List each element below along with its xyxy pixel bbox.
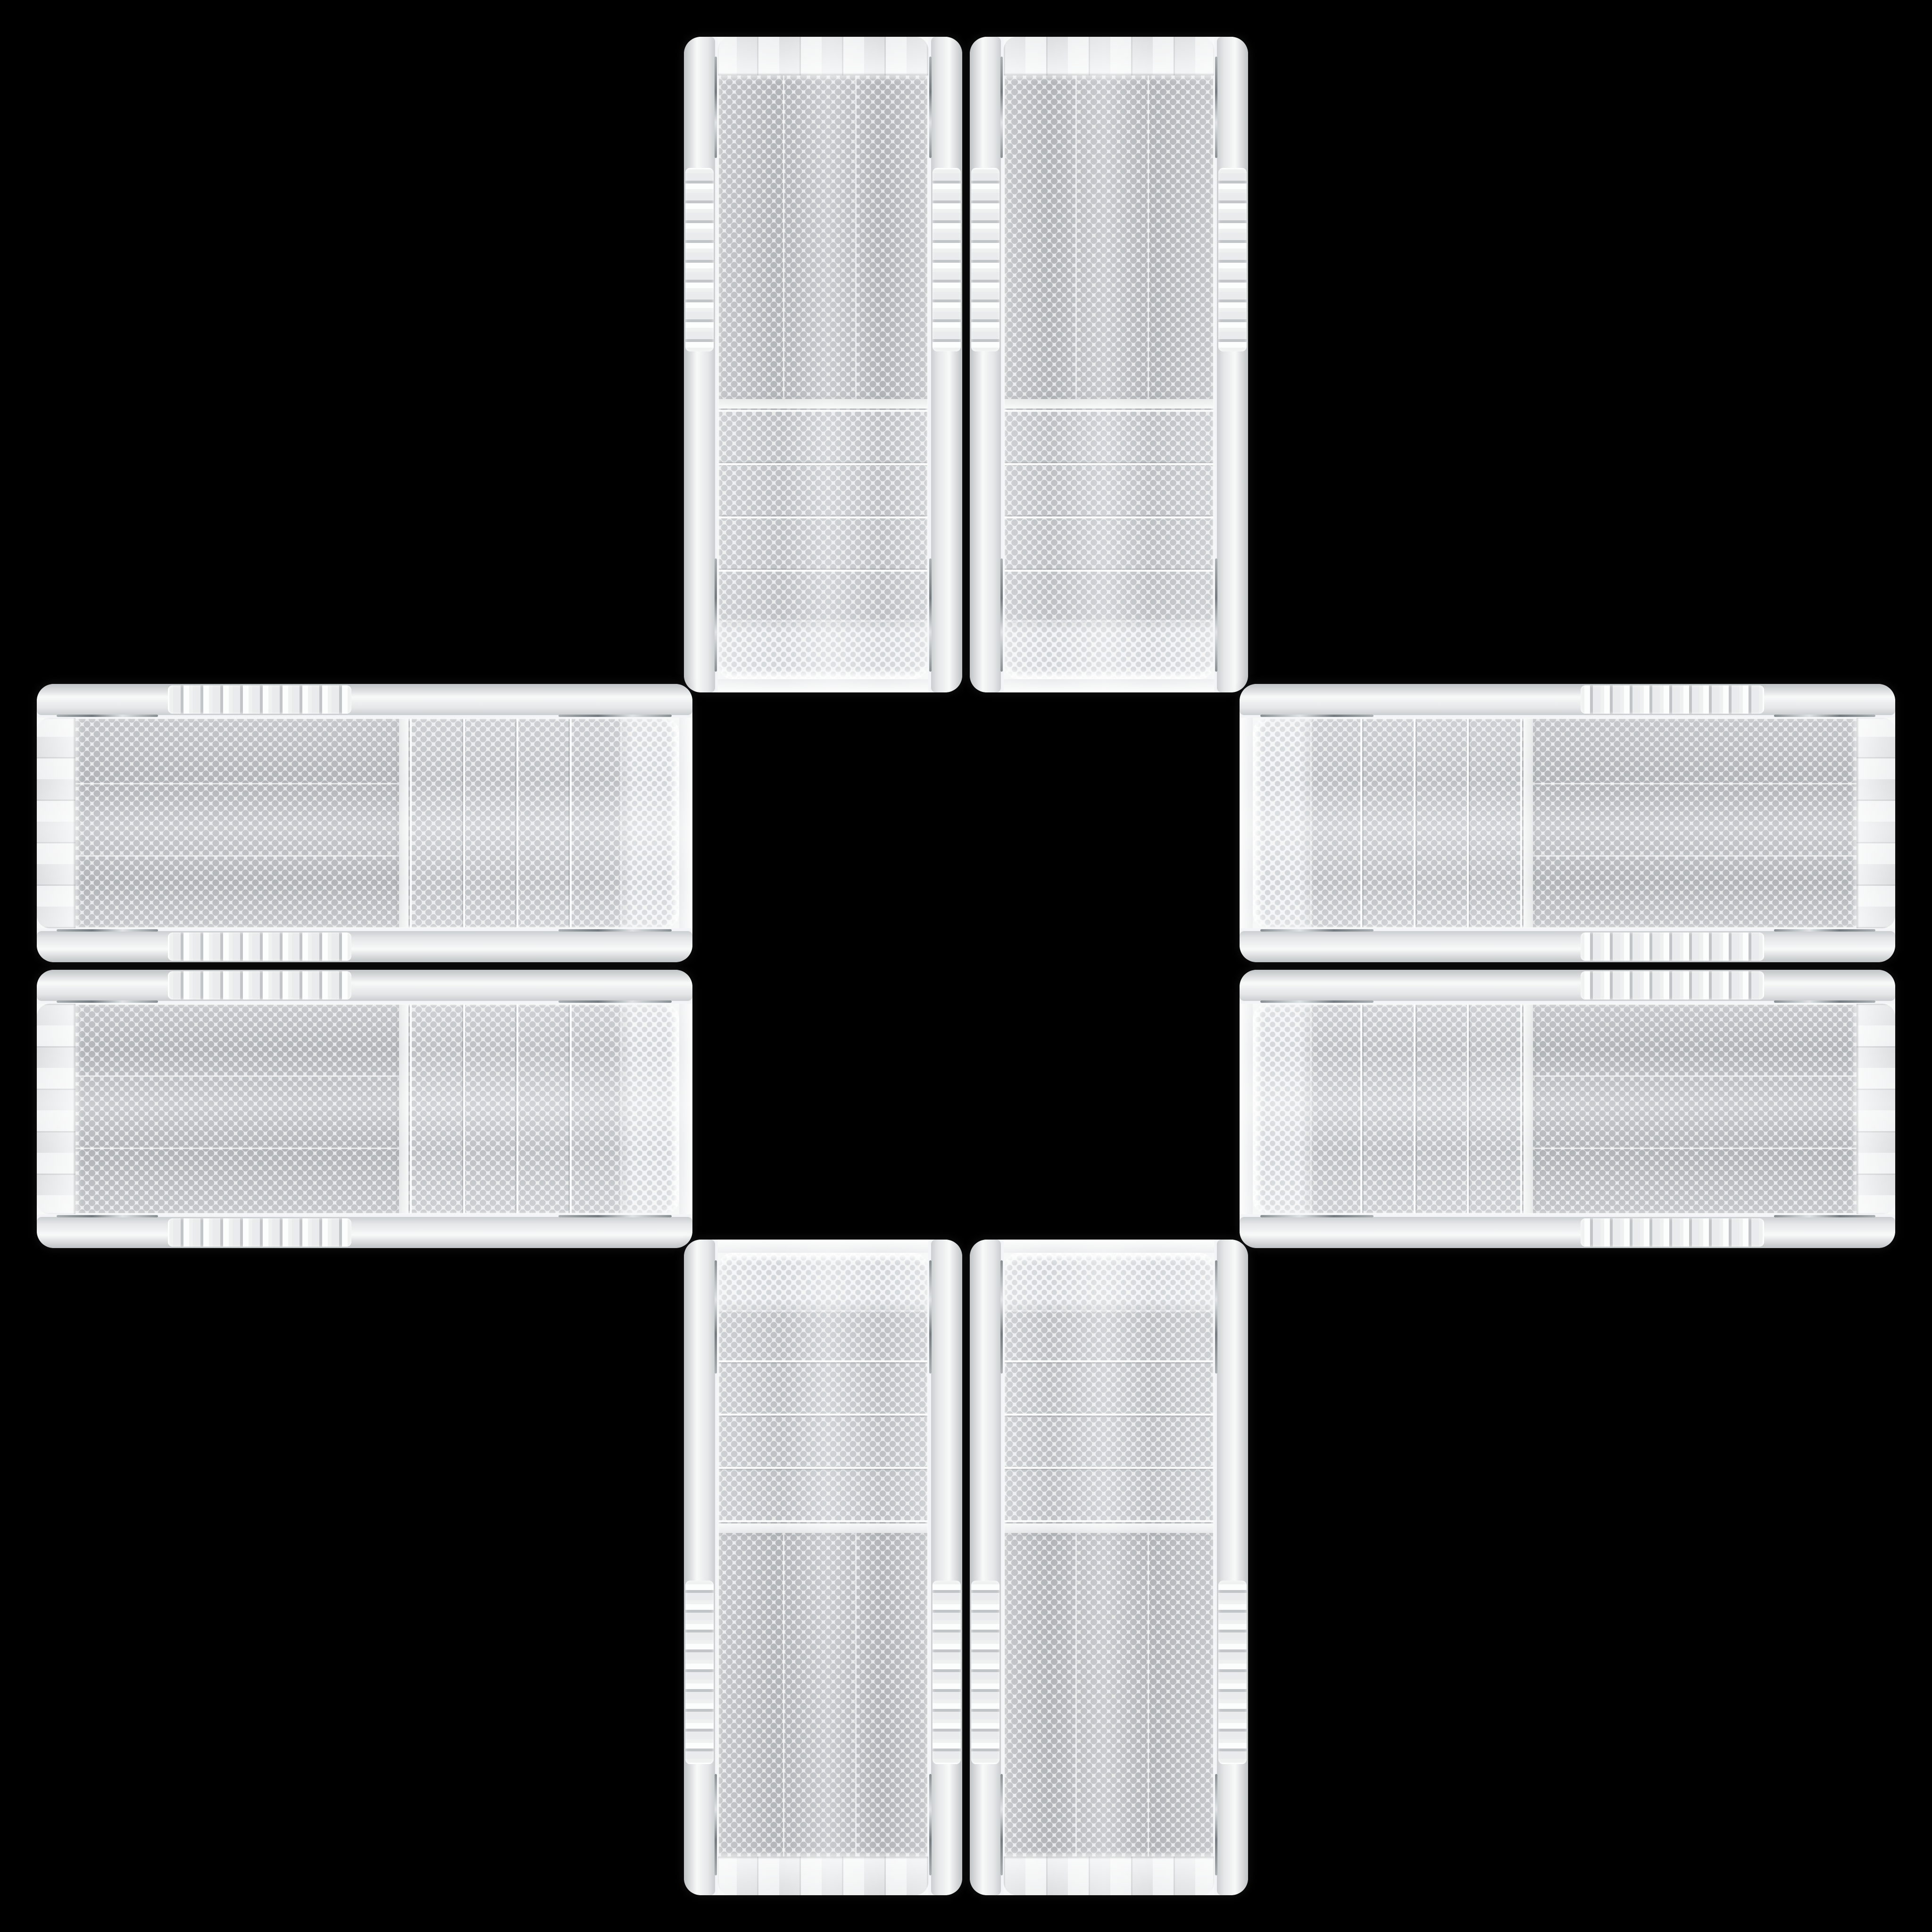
front-mesh-panel: COOLER MASTER bbox=[1533, 719, 1857, 927]
chrome-accent-right-bottom bbox=[57, 715, 158, 717]
top-mesh-bulge bbox=[622, 719, 679, 927]
front-mesh-panel: COOLER MASTER bbox=[719, 75, 927, 399]
case-body: COOLER MASTER bbox=[1240, 970, 1895, 1248]
top-mesh-bulge bbox=[719, 622, 927, 679]
grip-ribs-left bbox=[1581, 971, 1764, 999]
pc-case-left-bottom: COOLER MASTER bbox=[37, 970, 692, 1248]
grip-ribs-right bbox=[685, 168, 714, 351]
top-trim-band bbox=[679, 718, 692, 928]
case-body: COOLER MASTER bbox=[684, 1240, 962, 1895]
case-side-rail-right bbox=[1217, 37, 1248, 692]
drive-bay-covers bbox=[1005, 1310, 1213, 1524]
chrome-accent-left-bottom bbox=[1000, 1774, 1003, 1875]
drive-bay-covers bbox=[719, 1310, 927, 1524]
case-side-rail-right bbox=[684, 1240, 715, 1895]
top-mesh-bulge bbox=[1253, 1005, 1310, 1213]
chrome-accent-left-top bbox=[558, 929, 672, 932]
top-mesh-bulge bbox=[1253, 719, 1310, 927]
grip-ribs-right bbox=[1218, 1581, 1247, 1764]
drive-bay-covers bbox=[719, 408, 927, 622]
grip-ribs-left bbox=[168, 933, 351, 961]
top-trim-band bbox=[718, 1240, 928, 1253]
top-trim-band bbox=[1240, 1004, 1253, 1214]
case-body: COOLER MASTER bbox=[684, 37, 962, 692]
grip-ribs-left bbox=[971, 1581, 999, 1764]
drive-bay-covers bbox=[1310, 719, 1524, 927]
case-side-rail-left bbox=[970, 37, 1001, 692]
chrome-accent-right-bottom bbox=[57, 1215, 158, 1217]
top-mesh-bulge bbox=[719, 1253, 927, 1310]
case-front-panel: COOLER MASTER bbox=[1004, 37, 1214, 692]
top-trim-band bbox=[679, 1004, 692, 1214]
top-mesh-bulge bbox=[622, 1005, 679, 1213]
case-side-rail-left bbox=[931, 37, 962, 692]
chrome-accent-left-top bbox=[558, 1000, 672, 1003]
grip-ribs-right bbox=[1581, 1218, 1764, 1247]
chrome-accent-right-top bbox=[715, 1260, 717, 1374]
chrome-accent-right-bottom bbox=[1215, 1774, 1217, 1875]
bottom-cap bbox=[718, 37, 928, 75]
case-body: COOLER MASTER bbox=[970, 37, 1248, 692]
top-trim-band bbox=[718, 679, 928, 692]
case-front-panel: COOLER MASTER bbox=[718, 1240, 928, 1895]
top-mesh-bulge bbox=[1005, 1253, 1213, 1310]
pc-case-top-left: COOLER MASTER bbox=[684, 37, 962, 692]
grip-ribs-right bbox=[168, 685, 351, 714]
bottom-cap bbox=[718, 1857, 928, 1895]
case-front-panel: COOLER MASTER bbox=[1240, 1004, 1895, 1214]
panel-separator bbox=[1524, 1005, 1533, 1213]
case-body: COOLER MASTER bbox=[1240, 684, 1895, 962]
chrome-accent-right-bottom bbox=[715, 57, 717, 158]
panel-separator bbox=[719, 399, 927, 408]
pc-case-left-top: COOLER MASTER bbox=[37, 684, 692, 962]
case-side-rail-left bbox=[1240, 931, 1895, 962]
chrome-accent-left-bottom bbox=[929, 57, 932, 158]
case-side-rail-left bbox=[931, 1240, 962, 1895]
pc-case-right-top: COOLER MASTER bbox=[1240, 684, 1895, 962]
case-side-rail-left bbox=[1240, 970, 1895, 1001]
drive-bay-covers bbox=[408, 719, 622, 927]
case-body: COOLER MASTER bbox=[37, 970, 692, 1248]
front-mesh-panel: COOLER MASTER bbox=[719, 1533, 927, 1857]
bottom-cap bbox=[1857, 1004, 1895, 1214]
chrome-accent-left-top bbox=[1000, 1260, 1003, 1374]
front-mesh-panel: COOLER MASTER bbox=[75, 719, 399, 927]
grip-ribs-left bbox=[933, 168, 961, 351]
case-body: COOLER MASTER bbox=[970, 1240, 1248, 1895]
bottom-cap bbox=[37, 1004, 75, 1214]
case-side-rail-right bbox=[37, 684, 692, 715]
chrome-accent-left-bottom bbox=[1774, 1000, 1875, 1003]
case-front-panel: COOLER MASTER bbox=[37, 718, 692, 928]
case-side-rail-right bbox=[1240, 1217, 1895, 1248]
top-trim-band bbox=[1240, 718, 1253, 928]
chrome-accent-right-bottom bbox=[1215, 57, 1217, 158]
case-front-panel: COOLER MASTER bbox=[1240, 718, 1895, 928]
case-front-panel: COOLER MASTER bbox=[718, 37, 928, 692]
drive-bay-covers bbox=[1005, 408, 1213, 622]
product-collage: COOLER MASTER bbox=[0, 0, 1932, 1932]
chrome-accent-left-bottom bbox=[57, 929, 158, 932]
bottom-cap bbox=[37, 718, 75, 928]
chrome-accent-right-top bbox=[1260, 1215, 1374, 1217]
chrome-accent-left-bottom bbox=[57, 1000, 158, 1003]
chrome-accent-left-bottom bbox=[1000, 57, 1003, 158]
grip-ribs-right bbox=[1218, 168, 1247, 351]
chrome-accent-right-top bbox=[558, 1215, 672, 1217]
pc-case-top-right: COOLER MASTER bbox=[970, 37, 1248, 692]
grip-ribs-left bbox=[1581, 933, 1764, 961]
chrome-accent-right-top bbox=[1215, 1260, 1217, 1374]
grip-ribs-right bbox=[168, 1218, 351, 1247]
chrome-accent-left-top bbox=[1000, 558, 1003, 672]
front-mesh-panel: COOLER MASTER bbox=[1005, 1533, 1213, 1857]
chrome-accent-right-bottom bbox=[1774, 715, 1875, 717]
grip-ribs-left bbox=[971, 168, 999, 351]
case-side-rail-right bbox=[1240, 684, 1895, 715]
drive-bay-covers bbox=[1310, 1005, 1524, 1213]
panel-separator bbox=[399, 1005, 408, 1213]
pc-case-bottom-right: COOLER MASTER bbox=[970, 1240, 1248, 1895]
panel-separator bbox=[399, 719, 408, 927]
chrome-accent-right-bottom bbox=[715, 1774, 717, 1875]
grip-ribs-right bbox=[685, 1581, 714, 1764]
panel-separator bbox=[719, 1524, 927, 1533]
chrome-accent-left-top bbox=[929, 558, 932, 672]
top-mesh-bulge bbox=[1005, 622, 1213, 679]
bottom-cap bbox=[1004, 37, 1214, 75]
case-front-panel: COOLER MASTER bbox=[1004, 1240, 1214, 1895]
case-side-rail-right bbox=[684, 37, 715, 692]
grip-ribs-left bbox=[168, 971, 351, 999]
drive-bay-covers bbox=[408, 1005, 622, 1213]
pc-case-right-bottom: COOLER MASTER bbox=[1240, 970, 1895, 1248]
chrome-accent-right-top bbox=[1215, 558, 1217, 672]
case-side-rail-right bbox=[37, 1217, 692, 1248]
bottom-cap bbox=[1004, 1857, 1214, 1895]
front-mesh-panel: COOLER MASTER bbox=[1005, 75, 1213, 399]
chrome-accent-left-bottom bbox=[1774, 929, 1875, 932]
chrome-accent-left-top bbox=[1260, 929, 1374, 932]
case-side-rail-left bbox=[970, 1240, 1001, 1895]
pc-case-bottom-left: COOLER MASTER bbox=[684, 1240, 962, 1895]
chrome-accent-left-top bbox=[1260, 1000, 1374, 1003]
front-mesh-panel: COOLER MASTER bbox=[75, 1005, 399, 1213]
case-front-panel: COOLER MASTER bbox=[37, 1004, 692, 1214]
top-trim-band bbox=[1004, 1240, 1214, 1253]
grip-ribs-right bbox=[1581, 685, 1764, 714]
case-side-rail-left bbox=[37, 931, 692, 962]
chrome-accent-right-bottom bbox=[1774, 1215, 1875, 1217]
front-mesh-panel: COOLER MASTER bbox=[1533, 1005, 1857, 1213]
chrome-accent-left-top bbox=[929, 1260, 932, 1374]
panel-separator bbox=[1005, 399, 1213, 408]
panel-separator bbox=[1005, 1524, 1213, 1533]
case-side-rail-left bbox=[37, 970, 692, 1001]
chrome-accent-right-top bbox=[1260, 715, 1374, 717]
chrome-accent-right-top bbox=[715, 558, 717, 672]
panel-separator bbox=[1524, 719, 1533, 927]
bottom-cap bbox=[1857, 718, 1895, 928]
top-trim-band bbox=[1004, 679, 1214, 692]
case-body: COOLER MASTER bbox=[37, 684, 692, 962]
chrome-accent-left-bottom bbox=[929, 1774, 932, 1875]
chrome-accent-right-top bbox=[558, 715, 672, 717]
case-side-rail-right bbox=[1217, 1240, 1248, 1895]
grip-ribs-left bbox=[933, 1581, 961, 1764]
